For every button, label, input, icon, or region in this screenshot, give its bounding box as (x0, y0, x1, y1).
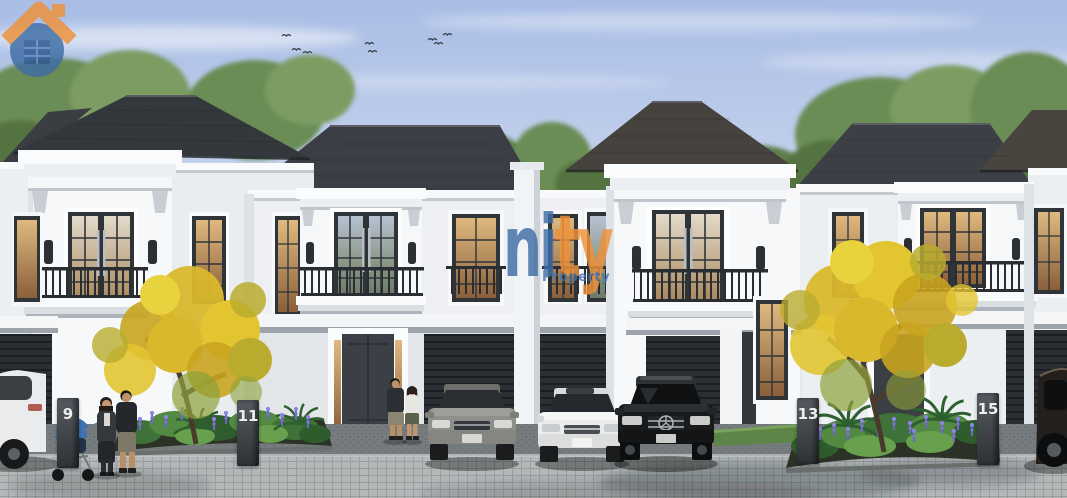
canopy (1002, 312, 1067, 324)
cornice (296, 188, 426, 199)
house-number: 15 (978, 400, 999, 418)
carport-pillar (720, 330, 742, 440)
corbel (302, 210, 314, 226)
wall-lamp-icon (1012, 238, 1020, 260)
tall-window (1030, 204, 1067, 298)
wall-lamp-icon (756, 246, 765, 270)
corbel (900, 204, 912, 220)
house-number-pillar-11: 11 (237, 400, 259, 466)
house-number-pillar-15: 15 (977, 393, 999, 465)
house-number-pillar-9: 9 (57, 398, 79, 468)
corbel (408, 210, 420, 226)
tall-window (12, 212, 42, 306)
carport-canopy (248, 314, 636, 327)
cornice (604, 164, 796, 178)
house-number: 11 (238, 407, 259, 425)
wall-lamp-icon (408, 242, 416, 264)
cornice (894, 182, 1034, 193)
scene (0, 0, 1067, 498)
house-number: 13 (798, 405, 819, 423)
wall-lamp-icon (306, 242, 314, 264)
cornice (18, 150, 182, 164)
balcony-railing (26, 267, 148, 298)
balcony-railing (632, 269, 768, 302)
balcony-railing (300, 267, 424, 296)
balcony-slab (296, 296, 426, 305)
balcony-slab (626, 302, 772, 311)
rendering-canvas: nity Property 9 11 13 15 (0, 0, 1067, 498)
wall-lamp-icon (44, 240, 53, 264)
wall-lamp-icon (148, 240, 157, 264)
house-number: 9 (63, 405, 73, 423)
canopy (0, 316, 58, 328)
tall-window (542, 210, 584, 304)
wall-lamp-icon (632, 246, 641, 270)
house-number-pillar-13: 13 (797, 398, 819, 464)
tall-window (446, 210, 506, 306)
